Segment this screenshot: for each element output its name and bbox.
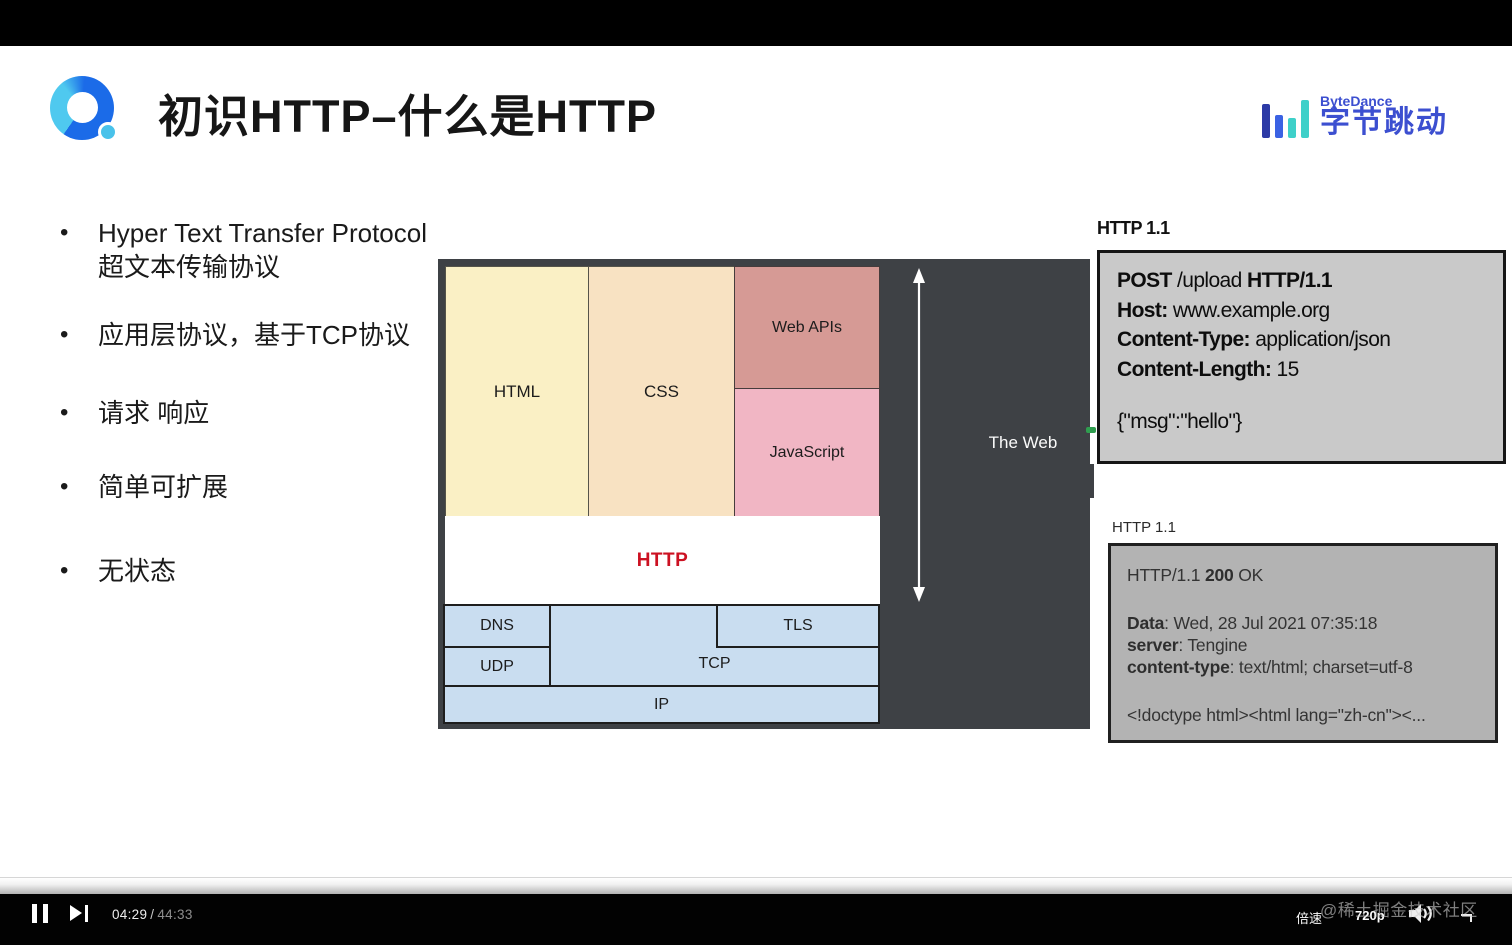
- bullet-dot: •: [60, 216, 98, 284]
- response-status-line: HTTP/1.1 200 OK: [1127, 564, 1495, 586]
- letterbox-top: [0, 0, 1512, 46]
- course-logo-dot: [98, 122, 118, 142]
- bullet-dot: •: [60, 318, 98, 352]
- duration: 44:33: [157, 907, 192, 922]
- diagram-cell-ip: IP: [443, 685, 880, 724]
- double-arrow-icon: [909, 267, 929, 603]
- request-line: Content-Type: application/json: [1117, 325, 1503, 355]
- request-line: Content-Length: 15: [1117, 355, 1503, 385]
- diagram-cell-html: HTML: [445, 266, 589, 518]
- diagram-cell-javascript: JavaScript: [734, 388, 880, 517]
- bytedance-bar: [1262, 104, 1270, 138]
- bullet-item: • 无状态: [60, 554, 176, 588]
- bytedance-name-cn: 字节跳动: [1320, 108, 1448, 139]
- video-player: 初识HTTP–什么是HTTP ByteDance 字节跳动 • Hyper Te…: [0, 0, 1512, 945]
- request-line: POST /upload HTTP/1.1: [1117, 266, 1503, 296]
- pause-button[interactable]: [32, 904, 48, 923]
- diagram-cell-web-apis: Web APIs: [734, 266, 880, 389]
- diagram-cell-http: HTTP: [445, 516, 880, 605]
- bytedance-bar: [1288, 118, 1296, 138]
- time-separator: /: [147, 907, 157, 922]
- current-time: 04:29: [112, 907, 147, 922]
- bytedance-bars-icon: [1262, 86, 1310, 140]
- bullet-item: • 应用层协议，基于TCP协议: [60, 318, 410, 352]
- http-request-card: POST /upload HTTP/1.1 Host: www.example.…: [1097, 250, 1506, 464]
- response-header: server: Tengine: [1127, 634, 1495, 656]
- bullet-dot: •: [60, 396, 98, 430]
- the-web-label: The Web: [943, 433, 1103, 453]
- green-marker-dot: [1086, 427, 1096, 433]
- request-line: Host: www.example.org: [1117, 296, 1503, 326]
- bullet-item: • 请求 响应: [60, 396, 209, 430]
- diagram-cell-udp: UDP: [443, 646, 551, 687]
- http-request-label: HTTP 1.1: [1097, 218, 1170, 239]
- time-display: 04:29/44:33: [112, 907, 193, 922]
- response-header: content-type: text/html; charset=utf-8: [1127, 656, 1495, 678]
- bullet-text: 简单可扩展: [98, 470, 228, 504]
- diagram-cell-tls: TLS: [716, 604, 880, 648]
- http-response-card: HTTP/1.1 200 OK Data: Wed, 28 Jul 2021 0…: [1108, 543, 1498, 743]
- bytedance-wordmark: ByteDance 字节跳动: [1320, 94, 1448, 140]
- slide-title: 初识HTTP–什么是HTTP: [158, 80, 657, 145]
- request-body: {"msg":"hello"}: [1117, 407, 1503, 437]
- bullet-text: 无状态: [98, 554, 176, 588]
- diagram-frame-tab: [1088, 464, 1094, 498]
- bullet-dot: •: [60, 554, 98, 588]
- bytedance-bar: [1301, 100, 1309, 138]
- bytedance-bar: [1275, 115, 1283, 138]
- protocol-stack-diagram: HTML CSS Web APIs JavaScript HTTP TCP DN…: [438, 259, 1090, 729]
- bytedance-logo: ByteDance 字节跳动: [1262, 86, 1448, 140]
- video-surface[interactable]: 初识HTTP–什么是HTTP ByteDance 字节跳动 • Hyper Te…: [0, 46, 1512, 877]
- watermark: @稀土掘金技术社区: [1320, 896, 1478, 921]
- course-logo-hole: [67, 92, 98, 123]
- diagram-cell-dns: DNS: [443, 604, 551, 648]
- bullet-text: Hyper Text Transfer Protocol 超文本传输协议: [98, 216, 427, 284]
- response-header: Data: Wed, 28 Jul 2021 07:35:18: [1127, 612, 1495, 634]
- bullet-dot: •: [60, 470, 98, 504]
- diagram-cell-css: CSS: [588, 266, 735, 518]
- next-button[interactable]: [70, 904, 89, 923]
- bullet-item: • Hyper Text Transfer Protocol 超文本传输协议: [60, 216, 427, 284]
- course-logo: [50, 76, 124, 148]
- player-controls: 04:29/44:33 倍速 720p @稀土掘金技术社区: [0, 894, 1512, 945]
- seek-bar[interactable]: [0, 877, 1512, 894]
- bullet-text: 应用层协议，基于TCP协议: [98, 318, 410, 352]
- http-response-label: HTTP 1.1: [1112, 519, 1176, 536]
- bullet-text: 请求 响应: [98, 396, 209, 430]
- playback-speed-button[interactable]: 倍速: [1296, 908, 1322, 927]
- bullet-item: • 简单可扩展: [60, 470, 228, 504]
- response-body: <!doctype html><html lang="zh-cn"><...: [1127, 704, 1495, 726]
